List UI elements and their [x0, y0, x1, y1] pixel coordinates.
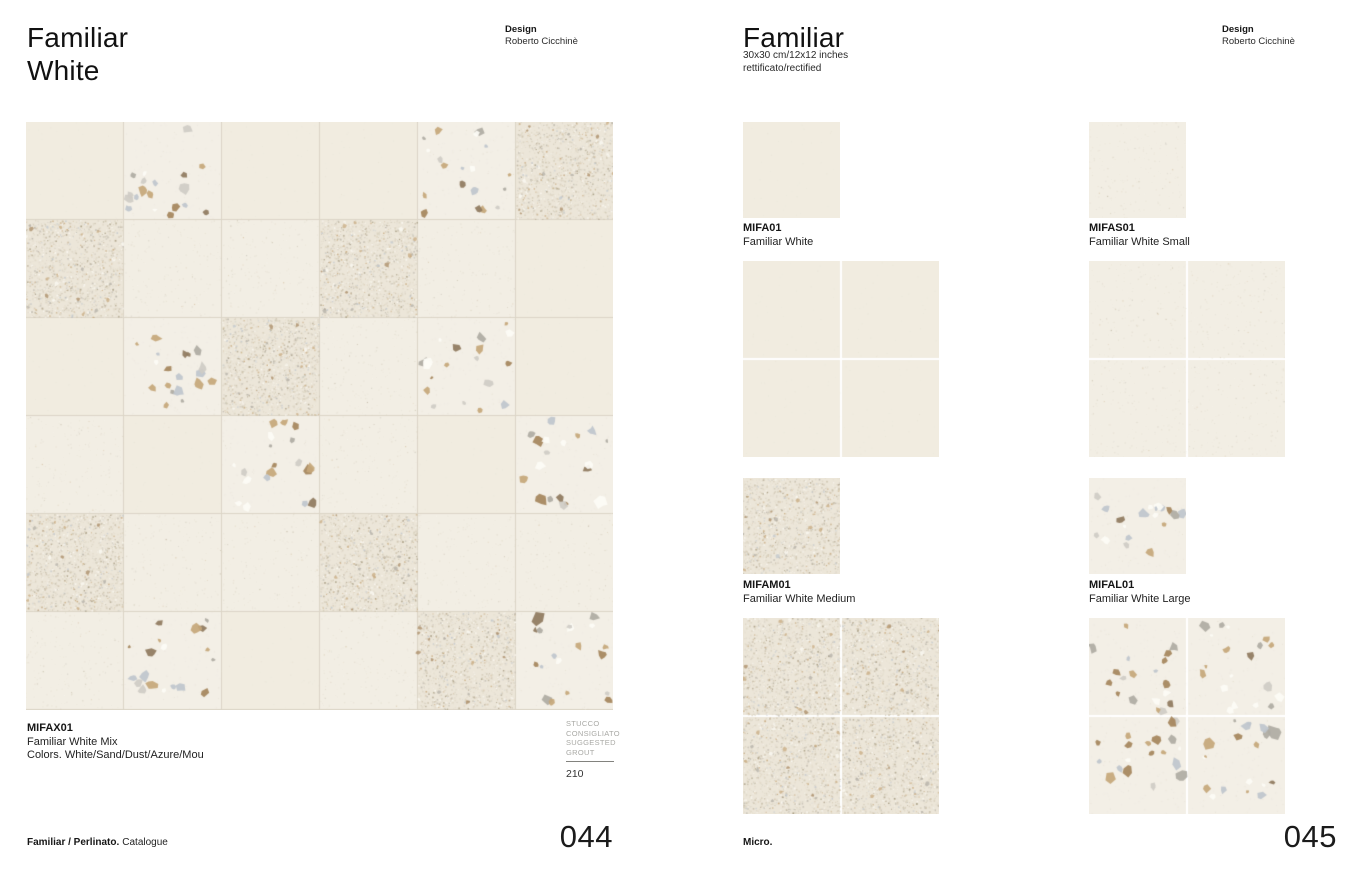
product-code: MIFAS01 — [1089, 222, 1190, 236]
product-name: Familiar White — [743, 236, 813, 250]
mosaic-tile-panel — [26, 122, 613, 710]
format-size: 30x30 cm/12x12 inches — [743, 50, 848, 63]
product-name: Familiar White Mix — [27, 736, 204, 750]
design-label: Design — [505, 24, 578, 36]
grout-label-line: GROUT — [566, 748, 616, 758]
left-page-number: 044 — [560, 820, 613, 854]
product-name: Familiar White Medium — [743, 593, 855, 607]
designer-name: Roberto Cicchinè — [1222, 36, 1295, 48]
product-colors: Colors. White/Sand/Dust/Azure/Mou — [27, 749, 204, 763]
designer-name: Roberto Cicchinè — [505, 36, 578, 48]
product-code: MIFAX01 — [27, 722, 204, 736]
product-swatch-canvas — [743, 122, 840, 218]
catalogue-spread: Familiar White Design Roberto Cicchinè M… — [0, 0, 1356, 872]
right-page-number: 045 — [1284, 820, 1337, 854]
product-caption: MIFAS01 Familiar White Small — [1089, 222, 1190, 249]
product-grid-canvas — [743, 618, 939, 814]
left-footer: Familiar / Perlinato.Catalogue — [27, 837, 168, 849]
grout-label-line: SUGGESTED — [566, 738, 616, 748]
left-design-credit: Design Roberto Cicchinè — [505, 24, 578, 48]
product-swatch-canvas — [1089, 122, 1186, 218]
product-code: MIFAL01 — [1089, 579, 1190, 593]
product-caption: MIFA01 Familiar White — [743, 222, 813, 249]
grout-label-line: CONSIGLIATO — [566, 729, 616, 739]
product-swatch-canvas — [743, 478, 840, 574]
footer-collection: Familiar / Perlinato. — [27, 837, 119, 848]
footer-series: Micro. — [743, 837, 772, 848]
color-name: White — [27, 54, 128, 87]
product-name: Familiar White Large — [1089, 593, 1190, 607]
product-caption: MIFAM01 Familiar White Medium — [743, 579, 855, 606]
grout-value: 210 — [566, 768, 616, 780]
grout-divider — [566, 761, 614, 762]
product-grid-canvas — [743, 261, 939, 457]
right-footer: Micro. — [743, 837, 772, 849]
product-name: Familiar White Small — [1089, 236, 1190, 250]
format-info: 30x30 cm/12x12 inches rettificato/rectif… — [743, 50, 848, 75]
product-code: MIFA01 — [743, 222, 813, 236]
product-caption: MIFAL01 Familiar White Large — [1089, 579, 1190, 606]
product-grid-canvas — [1089, 261, 1285, 457]
collection-name: Familiar — [27, 21, 128, 54]
format-finish: rettificato/rectified — [743, 63, 848, 76]
right-design-credit: Design Roberto Cicchinè — [1222, 24, 1295, 48]
product-code: MIFAM01 — [743, 579, 855, 593]
product-grid-canvas — [1089, 618, 1285, 814]
grout-label-line: STUCCO — [566, 719, 616, 729]
grout-block: STUCCO CONSIGLIATO SUGGESTED GROUT 210 — [566, 719, 616, 780]
footer-catalogue: Catalogue — [122, 837, 168, 848]
design-label: Design — [1222, 24, 1295, 36]
mosaic-caption: MIFAX01 Familiar White Mix Colors. White… — [27, 722, 204, 763]
product-swatch-canvas — [1089, 478, 1186, 574]
left-page-title: Familiar White — [27, 21, 128, 87]
